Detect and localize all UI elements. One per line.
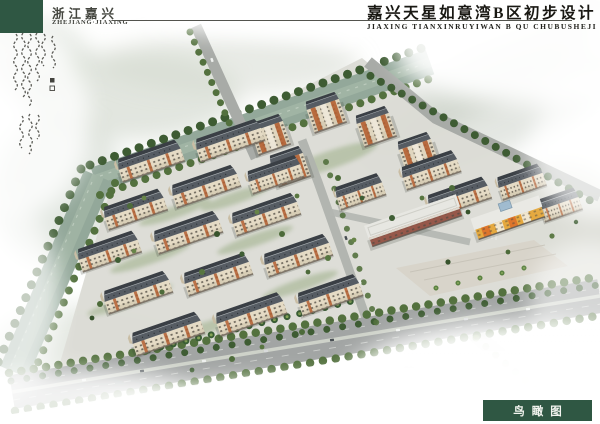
design-board: 浙江嘉兴 ZHEJIANG·JIAXING 嘉兴天星如意湾B区初步设计 JIAX…: [0, 0, 600, 424]
signature-seal-icon: [50, 78, 55, 83]
aerial-rendering: [0, 0, 600, 424]
project-title-cn: 嘉兴天星如意湾B区初步设计: [367, 1, 596, 23]
drawing-caption-label: 鸟瞰图: [506, 403, 569, 419]
project-title-en: JIAXING TIANXINRUYIWAN B QU CHUBUSHEJI: [367, 22, 597, 31]
drawing-caption: 鸟瞰图: [483, 400, 592, 421]
signature-seal-outline-icon: [50, 86, 55, 91]
calligraphy-inscription: [8, 30, 68, 165]
brand-color-block: [0, 0, 43, 33]
